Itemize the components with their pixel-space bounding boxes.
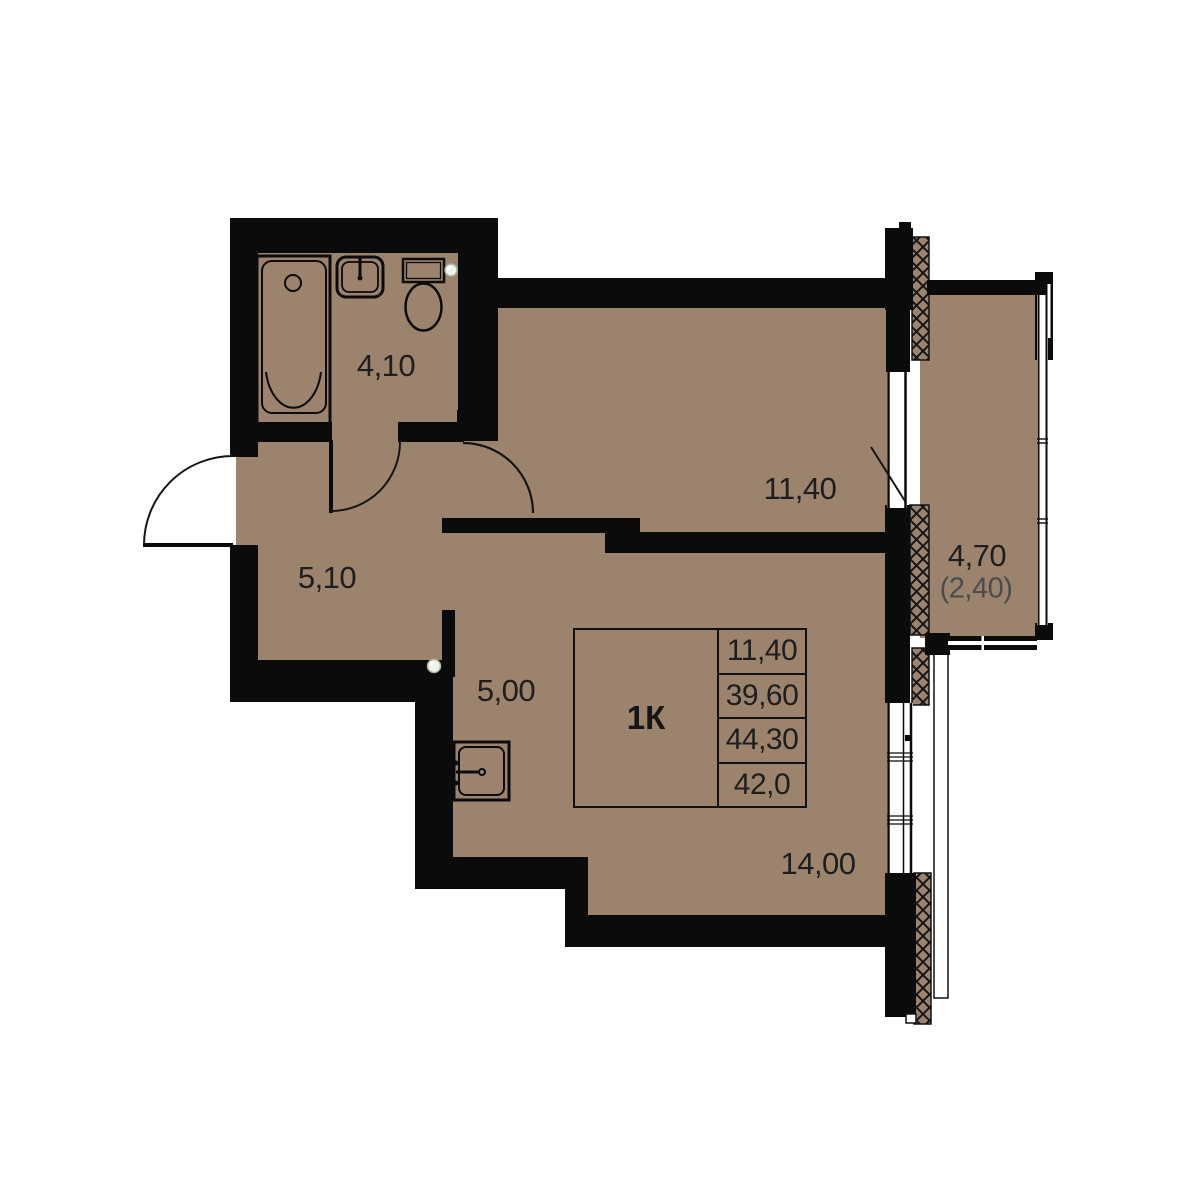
bathroom-door-panel [329, 440, 333, 513]
unit-values-column: 11,40 39,60 44,30 42,0 [719, 630, 805, 806]
unit-info-table: 1К 11,40 39,60 44,30 42,0 [573, 628, 807, 808]
bathroom-top-wall [230, 218, 490, 253]
room-label-kitchen: 5,00 [477, 673, 535, 709]
room-label-hallway: 5,10 [298, 560, 356, 596]
wall-end-notch [906, 1014, 916, 1023]
bedroom-door-jamb [457, 410, 498, 441]
kitchen-left-wall [415, 660, 453, 889]
bathroom-left-wall [230, 218, 258, 457]
hatch-column-lower [912, 648, 929, 705]
balcony-glazing-bottom [948, 636, 1037, 650]
right-wall-mid [885, 505, 910, 703]
living-bottom-wall [588, 915, 896, 947]
unit-value-row: 44,30 [719, 719, 805, 764]
hatch-column-mid [910, 505, 929, 635]
bedroom-top-wall [490, 278, 913, 308]
balcony-top-wall [927, 280, 1043, 295]
floor-plan: 4,10 5,10 5,00 11,40 14,00 4,70 (2,40) 1… [0, 0, 1200, 1200]
right-wall-lower [885, 873, 916, 1017]
unit-value-row: 42,0 [719, 764, 805, 807]
hallway-bottom-wall [230, 660, 415, 702]
room-label-balcony: 4,70 [948, 538, 1006, 574]
entry-threshold-floor [236, 455, 262, 545]
bedroom-bottom-wall [620, 532, 886, 553]
top-right-column [885, 228, 913, 310]
balcony-corner-block [925, 633, 950, 655]
bedroom-window-head [886, 308, 910, 372]
bathroom-bottom-wall-right [398, 422, 464, 442]
unit-value-row: 39,60 [719, 675, 805, 720]
living-room-window [887, 703, 913, 873]
entry-door-arc [144, 456, 233, 545]
outside-ledge [934, 652, 948, 998]
unit-value-row: 11,40 [719, 630, 805, 675]
entry-door-panel [143, 543, 233, 547]
hatch-column-bottom [914, 873, 931, 1024]
balcony-glazing-right [1037, 295, 1048, 625]
hatch-column-top [912, 237, 929, 360]
utility-dot-bathroom [445, 264, 457, 276]
top-right-column-notch [899, 222, 911, 228]
room-label-bedroom: 11,40 [764, 471, 837, 507]
floor-plan-drawing [0, 0, 1200, 1200]
balcony-bottom-right-post [1035, 623, 1053, 640]
corridor-bottom-wall [442, 518, 620, 533]
room-label-bathroom: 4,10 [357, 348, 415, 384]
room-label-balcony-reduced: (2,40) [940, 573, 1013, 606]
bathroom-right-wall [458, 218, 498, 412]
room-label-living: 14,00 [780, 846, 855, 882]
kitchen-stub-wall [442, 610, 455, 677]
unit-type-cell: 1К [575, 630, 719, 806]
bottom-step-wall [565, 882, 588, 947]
utility-dot-hallway [428, 660, 441, 673]
entry-door [143, 456, 233, 547]
